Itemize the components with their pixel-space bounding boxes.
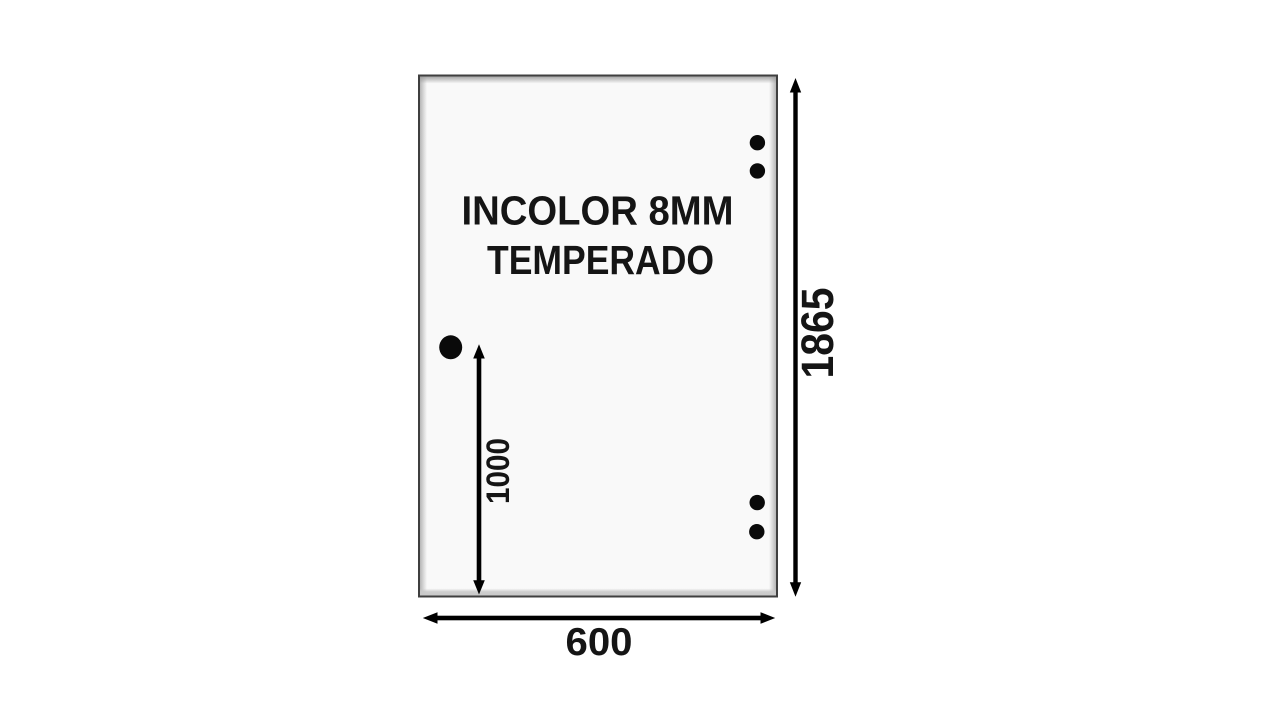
svg-text:TEMPERADO: TEMPERADO: [487, 237, 714, 283]
svg-text:600: 600: [566, 621, 633, 664]
svg-text:INCOLOR 8MM: INCOLOR 8MM: [462, 188, 734, 234]
svg-text:1000: 1000: [480, 438, 516, 504]
svg-text:1865: 1865: [792, 288, 843, 379]
